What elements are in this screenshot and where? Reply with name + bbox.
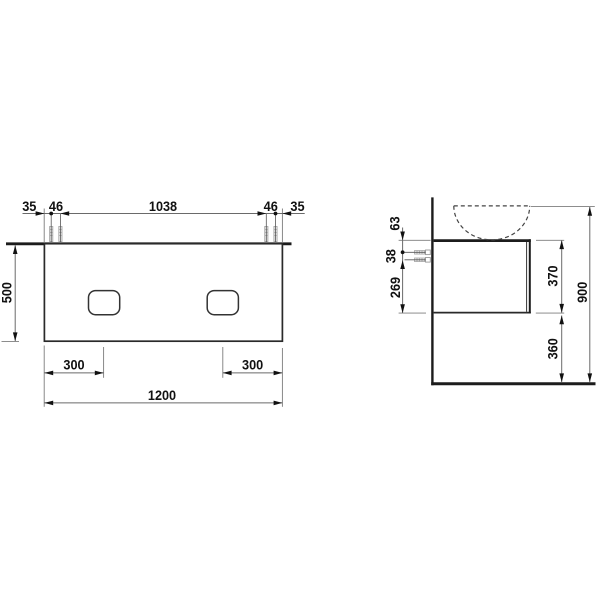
svg-text:35: 35 [290, 198, 304, 214]
svg-text:46: 46 [264, 198, 278, 214]
svg-text:35: 35 [22, 198, 36, 214]
svg-text:300: 300 [242, 357, 263, 373]
svg-text:360: 360 [545, 338, 561, 359]
svg-text:500: 500 [0, 282, 14, 303]
svg-text:300: 300 [63, 357, 84, 373]
svg-text:38: 38 [383, 249, 399, 263]
svg-text:1038: 1038 [149, 198, 177, 214]
svg-text:269: 269 [387, 277, 403, 298]
svg-text:900: 900 [574, 282, 590, 303]
svg-text:370: 370 [544, 265, 560, 286]
svg-text:1200: 1200 [148, 387, 176, 403]
svg-text:46: 46 [49, 198, 63, 214]
svg-text:63: 63 [386, 216, 402, 230]
